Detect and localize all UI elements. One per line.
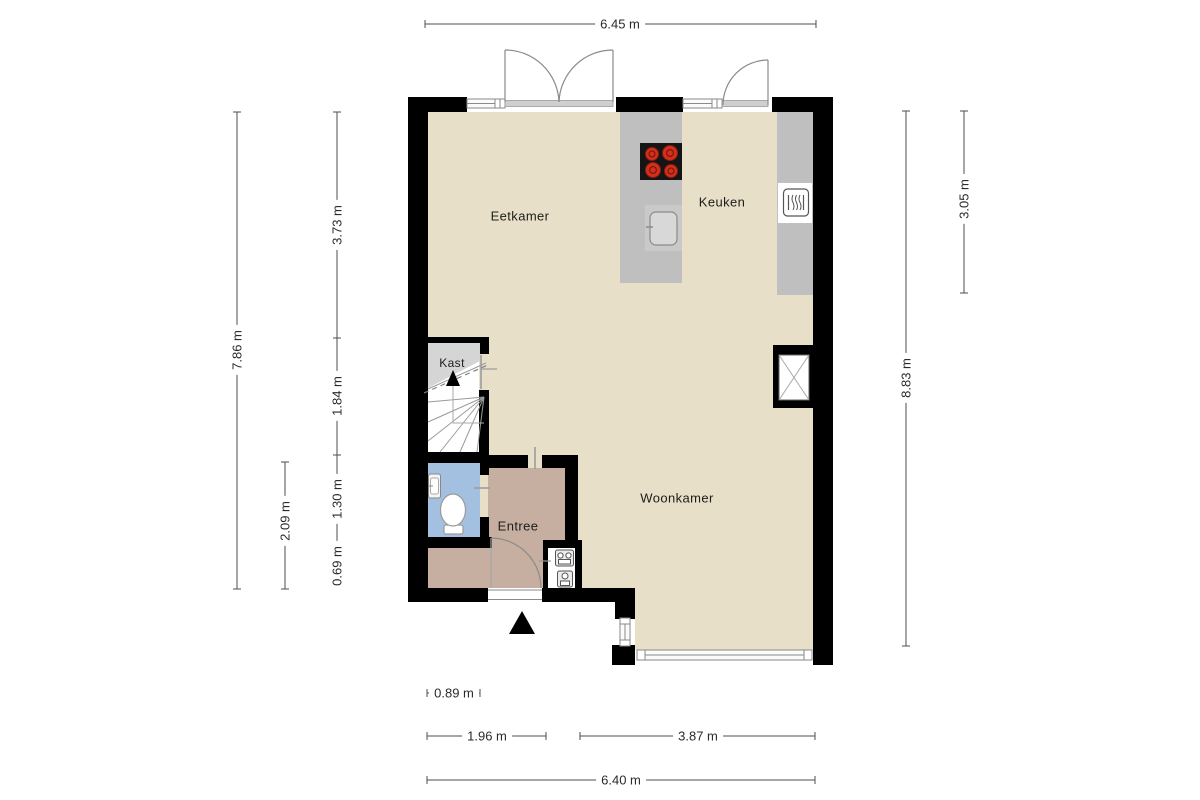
sink-icon [646, 212, 677, 245]
dim-bottom-entree: 1.96 m [462, 729, 512, 744]
dim-left-entree-block: 2.09 m [278, 496, 293, 546]
stove-icon [646, 146, 678, 178]
window-top-keuken [683, 99, 722, 108]
toilet-icon [441, 494, 466, 534]
dim-bottom-total: 6.40 m [596, 773, 646, 788]
room-label-kast: Kast [439, 356, 465, 370]
dim-top-total: 6.45 m [595, 17, 645, 32]
window-side-vertical [620, 618, 630, 646]
french-doors [505, 50, 613, 107]
dim-left-toilet: 1.30 m [330, 474, 345, 524]
dim-left-stairs: 1.84 m [330, 371, 345, 421]
plan-linework [0, 0, 1200, 800]
dim-left-eetkamer: 3.73 m [330, 200, 345, 250]
room-label-keuken: Keuken [699, 195, 746, 210]
window-top-left [467, 99, 505, 108]
entrance-arrow-icon [509, 611, 535, 634]
dim-left-hall: 0.69 m [330, 541, 345, 591]
floor-plan: Eetkamer Keuken Woonkamer Kast Entree 6.… [0, 0, 1200, 800]
dim-bottom-porch: 0.89 m [429, 686, 479, 701]
dim-left-total: 7.86 m [230, 325, 245, 375]
room-label-woonkamer: Woonkamer [640, 491, 713, 506]
washbasin-icon [428, 474, 441, 498]
shaft-x-icon [779, 355, 809, 400]
room-label-entree: Entree [498, 519, 539, 534]
dim-right-keuken: 3.05 m [957, 174, 972, 224]
dim-right-total: 8.83 m [899, 353, 914, 403]
front-door [488, 538, 542, 600]
dim-bottom-woonkamer: 3.87 m [673, 729, 723, 744]
room-label-eetkamer: Eetkamer [491, 209, 550, 224]
meter-icons [556, 550, 574, 587]
dishwasher-icon [784, 189, 809, 216]
single-door-keuken [722, 60, 768, 107]
window-bottom-woonkamer [637, 650, 812, 660]
